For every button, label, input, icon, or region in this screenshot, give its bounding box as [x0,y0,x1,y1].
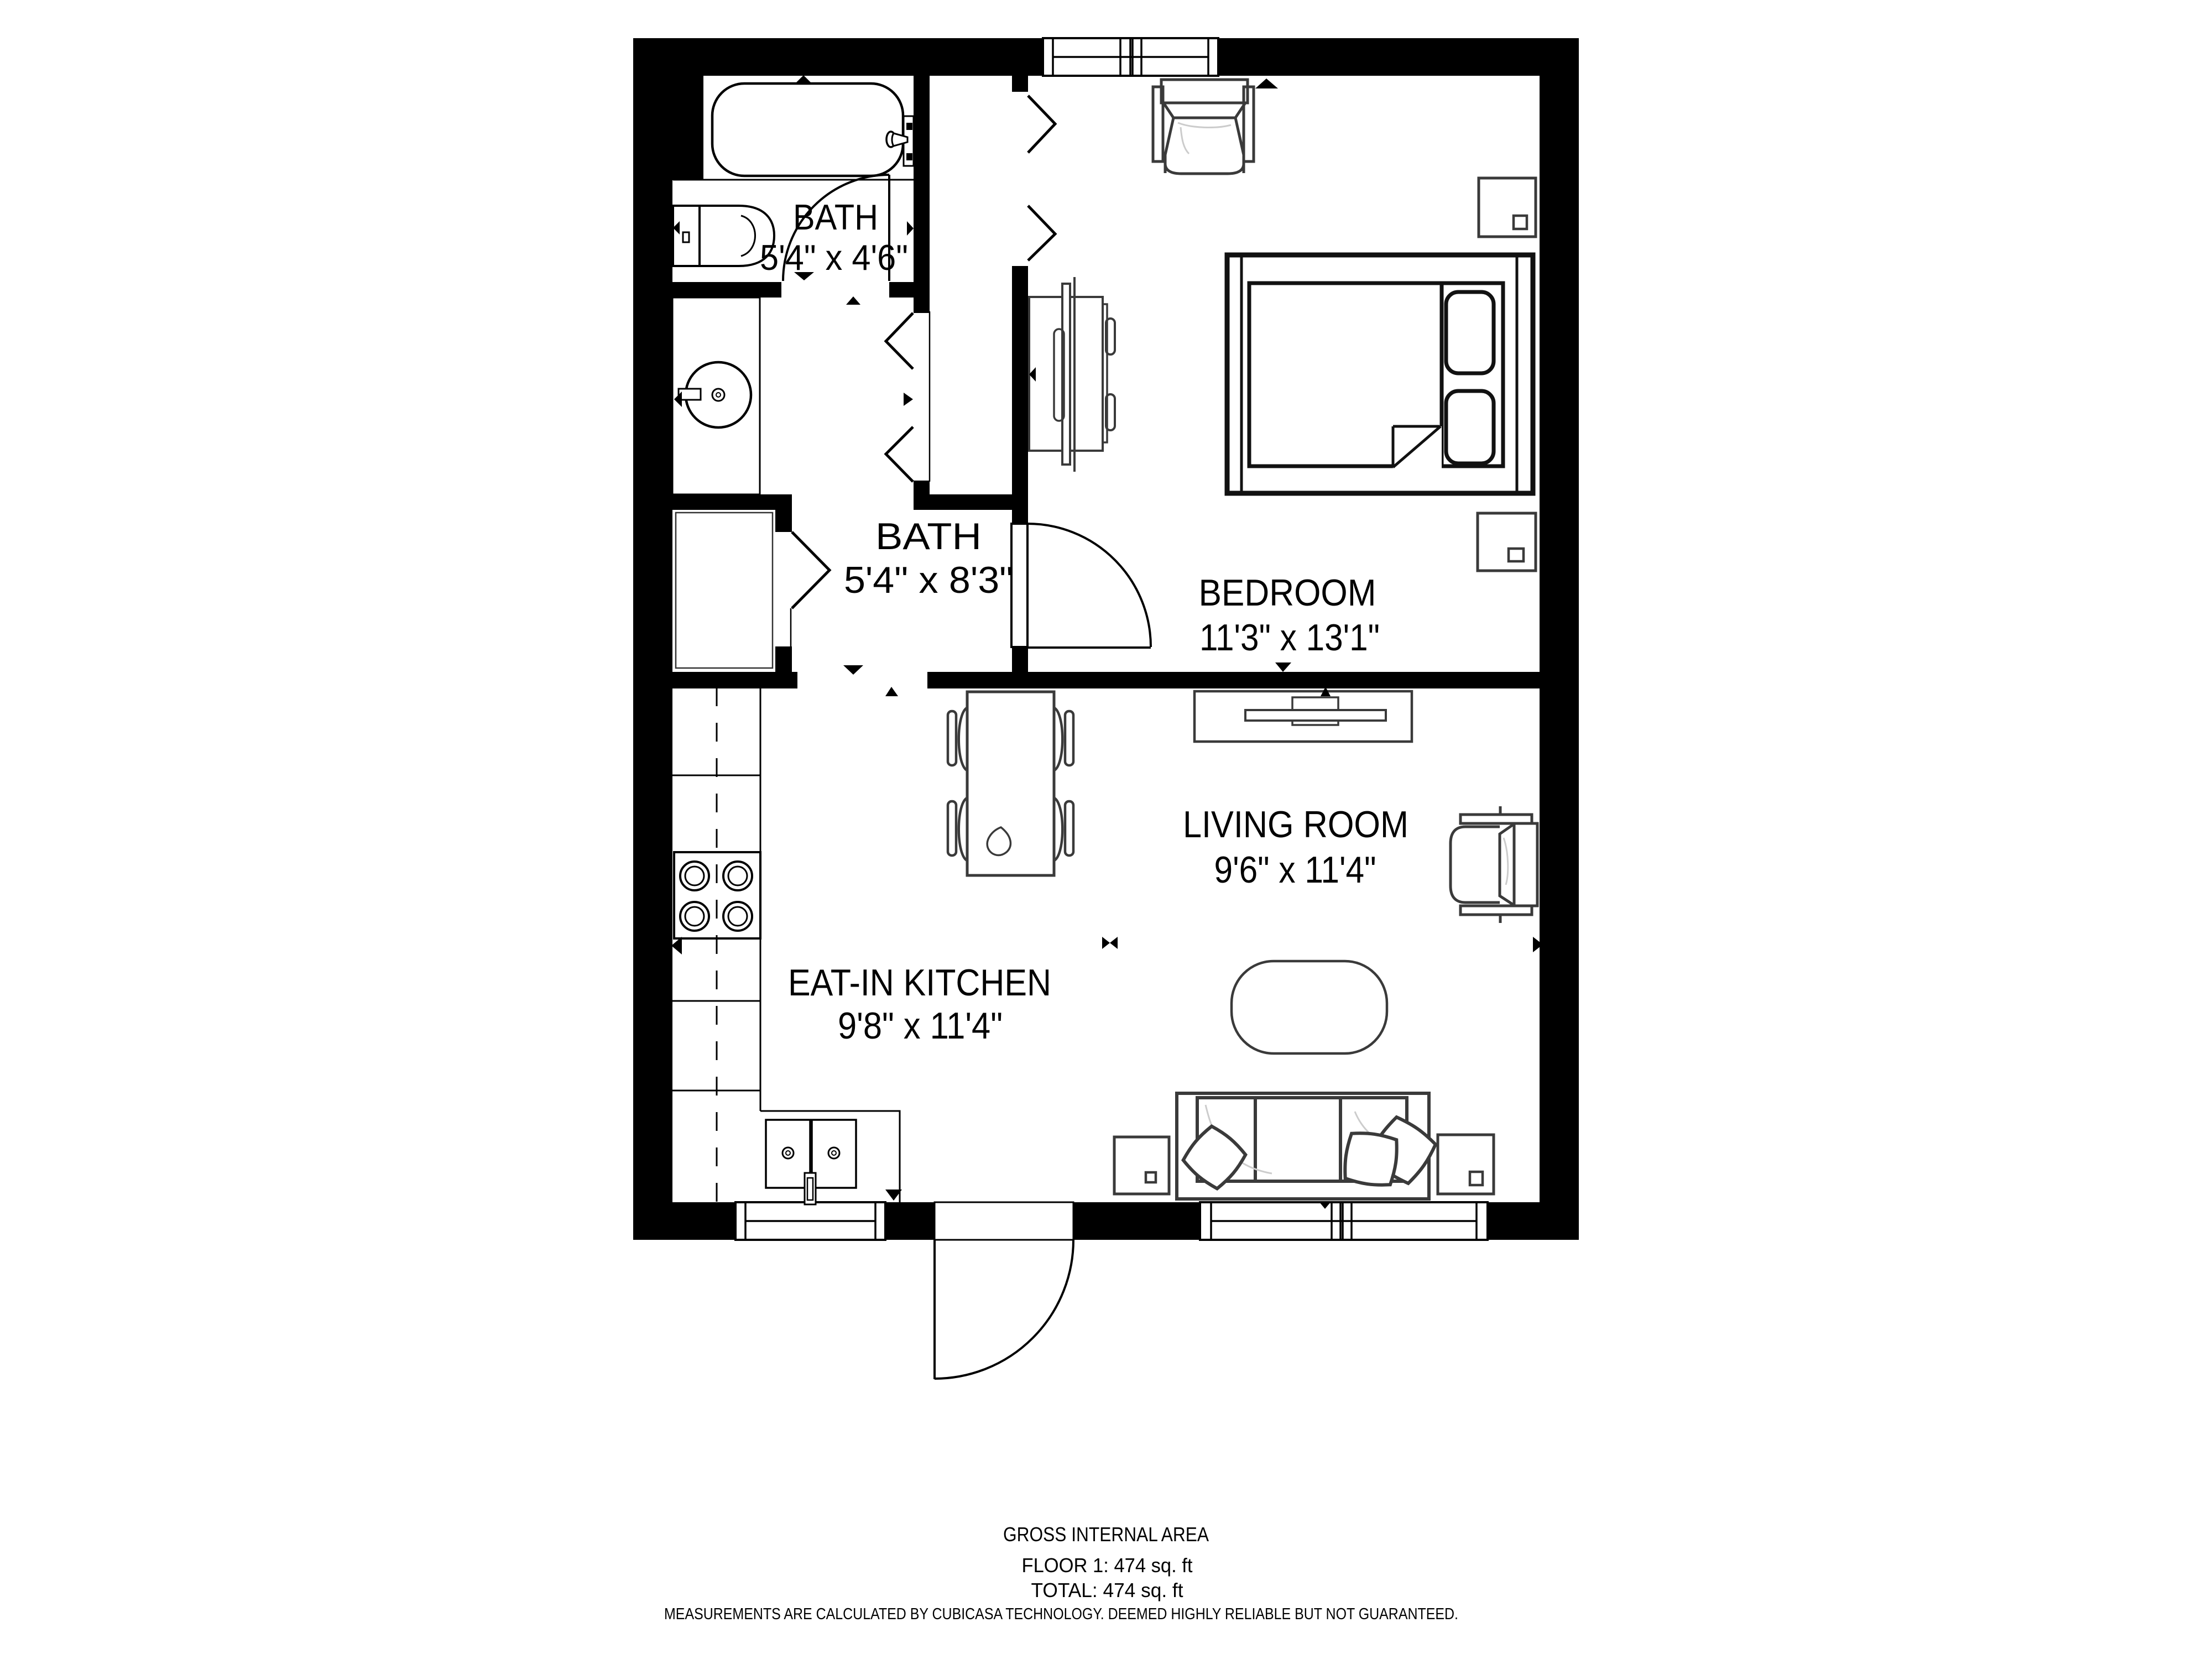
svg-text:11'3" x 13'1": 11'3" x 13'1" [1199,617,1380,659]
svg-text:5'4" x 8'3": 5'4" x 8'3" [844,559,1013,601]
svg-text:BATH: BATH [793,197,878,237]
svg-text:GROSS INTERNAL AREA: GROSS INTERNAL AREA [1003,1523,1209,1546]
svg-text:FLOOR 1: 474 sq. ft: FLOOR 1: 474 sq. ft [1022,1554,1193,1577]
svg-text:9'8" x 11'4": 9'8" x 11'4" [838,1005,1003,1047]
svg-text:EAT-IN KITCHEN: EAT-IN KITCHEN [788,962,1051,1004]
svg-text:BATH: BATH [875,515,982,557]
svg-text:LIVING ROOM: LIVING ROOM [1183,804,1408,846]
svg-text:MEASUREMENTS ARE CALCULATED BY: MEASUREMENTS ARE CALCULATED BY CUBICASA … [664,1605,1458,1623]
svg-text:9'6" x 11'4": 9'6" x 11'4" [1214,849,1376,891]
svg-text:5'4" x 4'6": 5'4" x 4'6" [760,237,908,278]
svg-text:BEDROOM: BEDROOM [1199,572,1376,614]
svg-text:TOTAL: 474 sq. ft: TOTAL: 474 sq. ft [1031,1579,1183,1601]
